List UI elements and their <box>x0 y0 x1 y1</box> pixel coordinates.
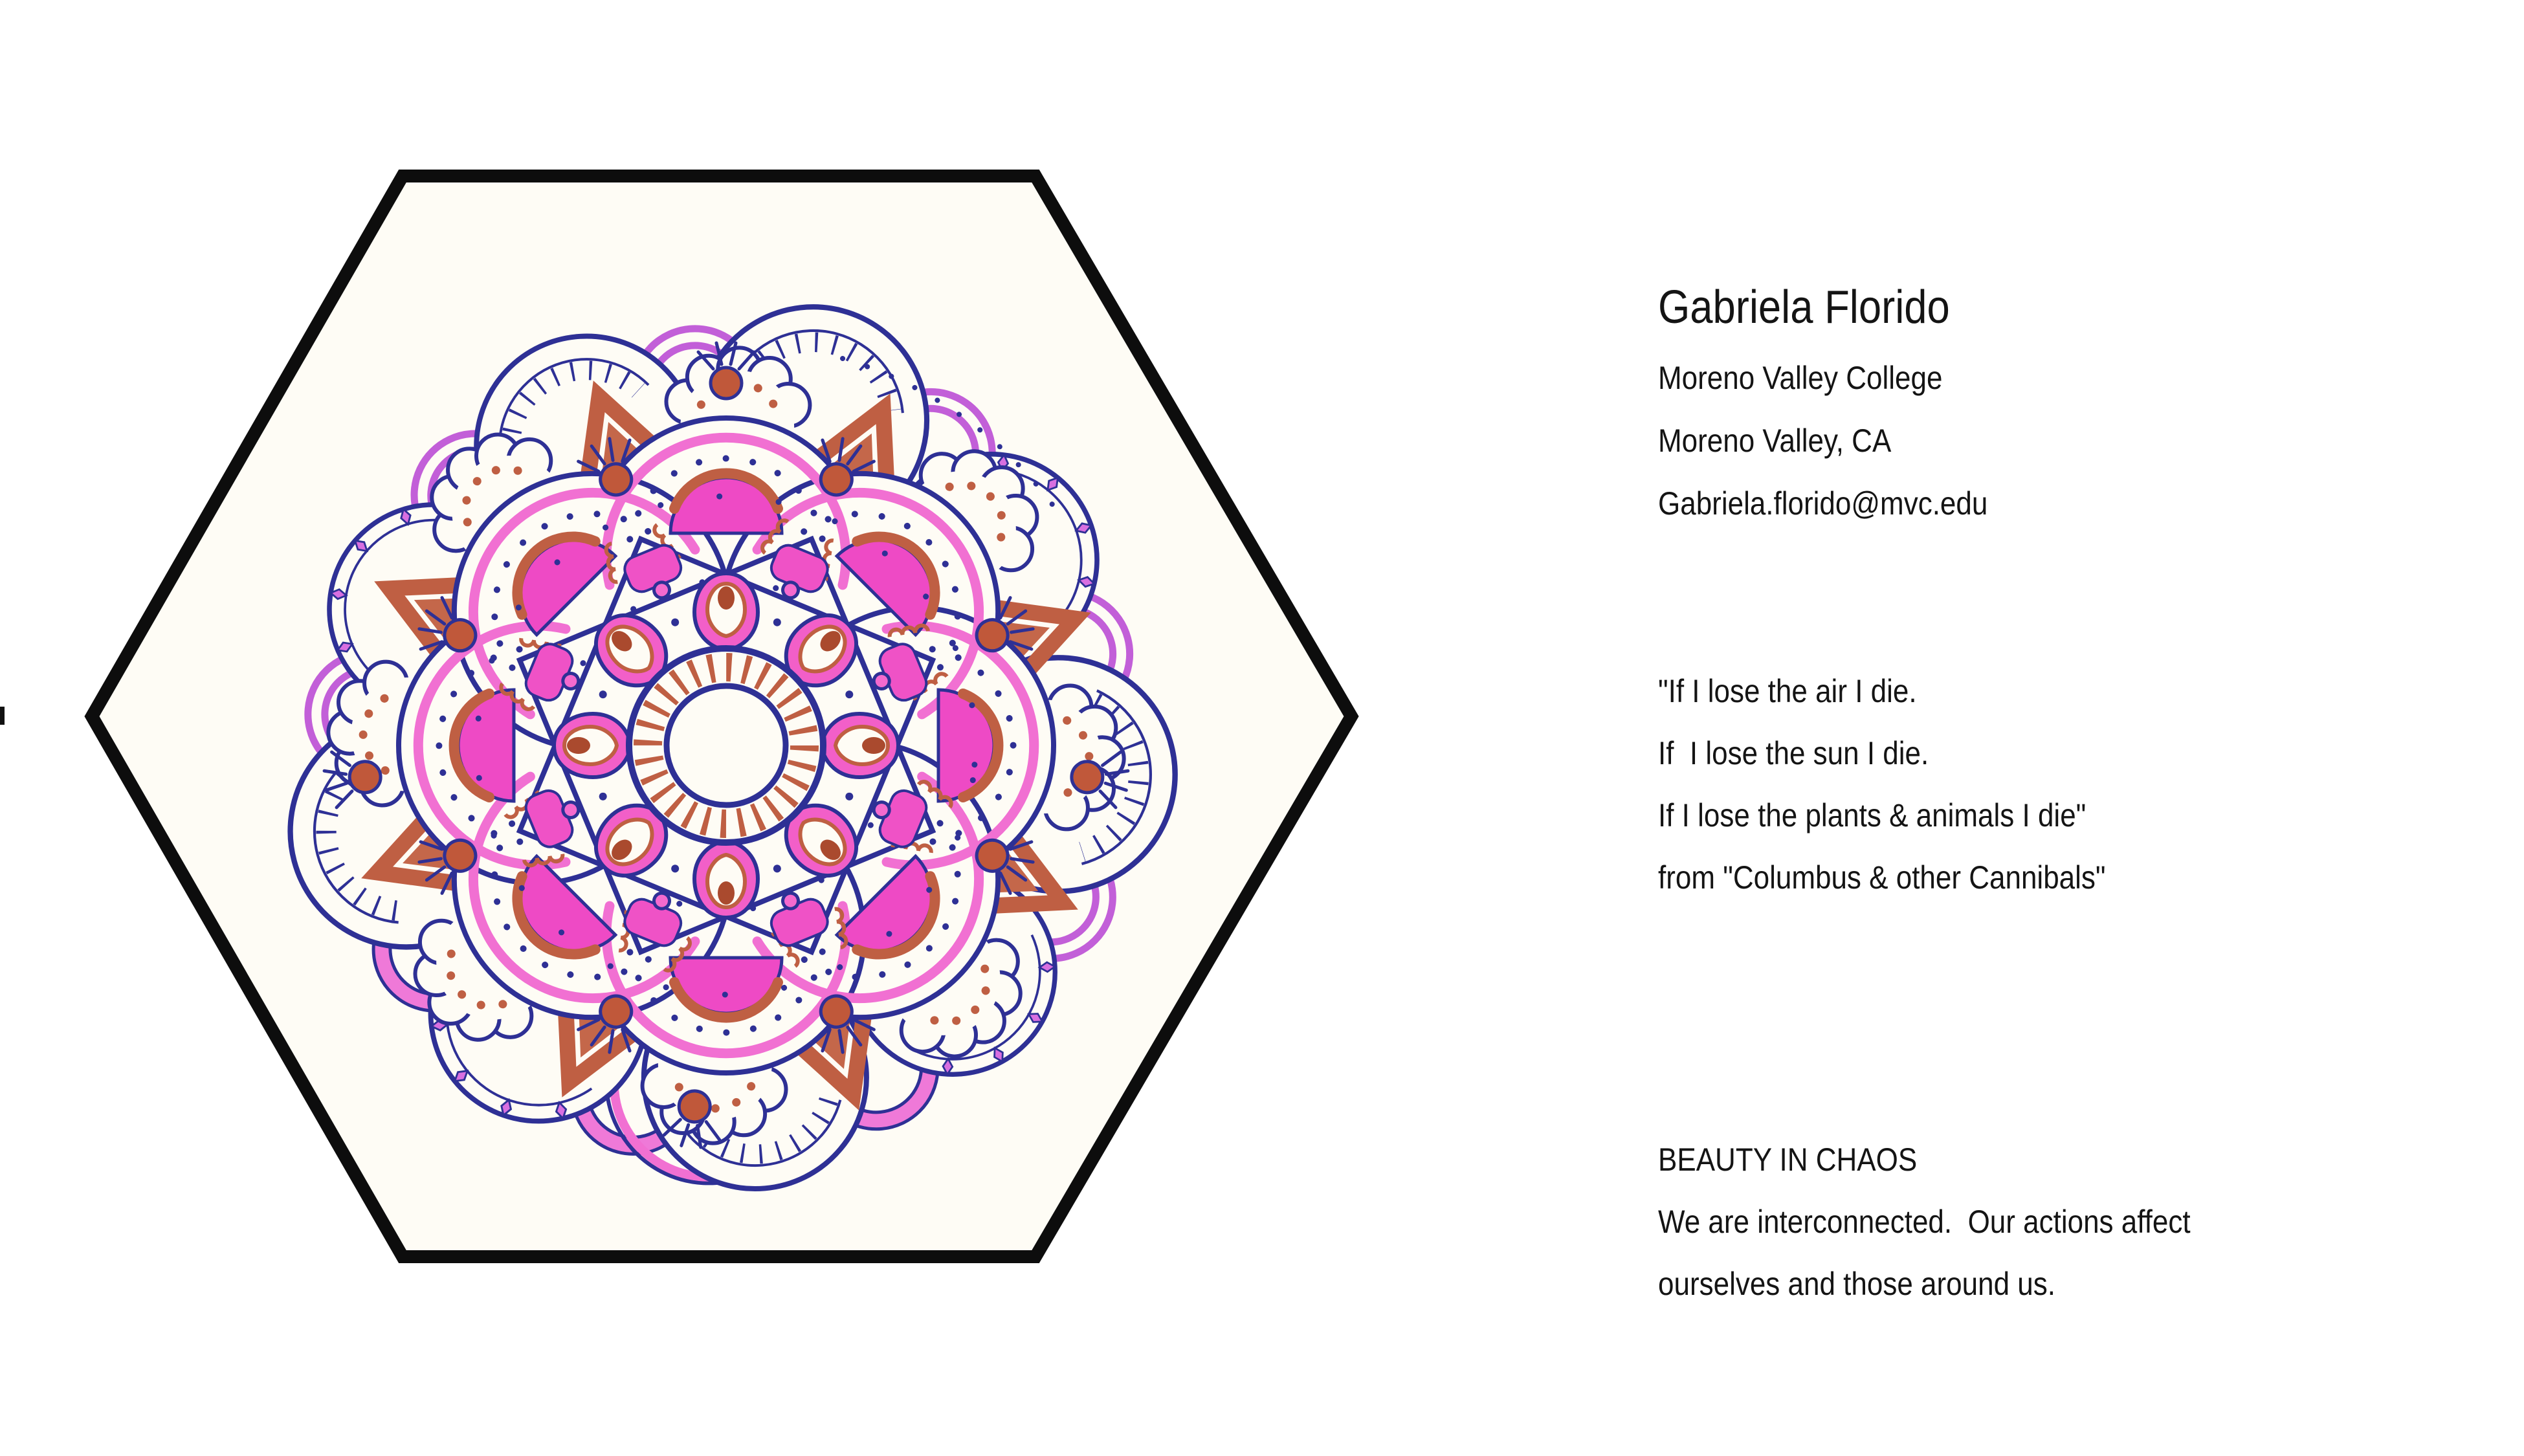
quote-attribution: from "Columbus & other Cannibals" <box>1658 858 2106 897</box>
mandala-center <box>629 648 823 843</box>
artwork-title: BEAUTY IN CHAOS <box>1658 1140 2191 1179</box>
quote-line: If I lose the sun I die. <box>1658 734 2106 773</box>
quote-line: "If I lose the air I die. <box>1658 672 2106 711</box>
scan-edge-mark <box>0 707 5 725</box>
statement-line: We are interconnected. Our actions affec… <box>1658 1202 2191 1241</box>
statement-line: ourselves and those around us. <box>1658 1264 2191 1303</box>
artist-statement-page: { "artist": { "name": "Gabriela Florido"… <box>0 0 2524 1456</box>
artist-info-block: Gabriela Florido Moreno Valley College M… <box>1658 256 1987 535</box>
artist-email: Gabriela.florido@mvc.edu <box>1658 484 1987 524</box>
artist-name: Gabriela Florido <box>1658 280 1987 335</box>
artist-city: Moreno Valley, CA <box>1658 421 1987 461</box>
quote-line: If I lose the plants & animals I die" <box>1658 796 2106 835</box>
artist-college: Moreno Valley College <box>1658 358 1987 398</box>
statement-block: BEAUTY IN CHAOS We are interconnected. O… <box>1658 1117 2191 1315</box>
quote-block: "If I lose the air I die. If I lose the … <box>1658 648 2106 909</box>
